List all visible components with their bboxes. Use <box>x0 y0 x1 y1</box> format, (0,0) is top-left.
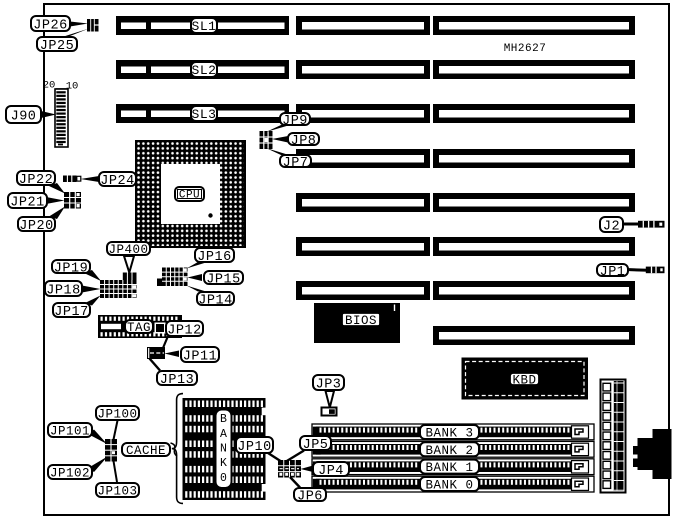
svg-text:JP9: JP9 <box>282 114 308 129</box>
svg-text:20: 20 <box>43 80 56 92</box>
svg-text:J90: J90 <box>11 109 37 124</box>
svg-text:JP100: JP100 <box>97 408 137 422</box>
svg-text:TAG: TAG <box>127 321 151 335</box>
svg-text:JP10: JP10 <box>237 440 271 455</box>
svg-text:JP4: JP4 <box>318 464 344 479</box>
svg-text:10: 10 <box>66 81 79 93</box>
svg-text:JP13: JP13 <box>160 373 194 388</box>
svg-text:JP22: JP22 <box>19 173 53 188</box>
svg-text:SL3: SL3 <box>192 107 217 122</box>
svg-text:BANK 2: BANK 2 <box>425 444 473 458</box>
svg-text:JP21: JP21 <box>10 195 44 210</box>
svg-text:0: 0 <box>220 472 227 485</box>
svg-text:JP17: JP17 <box>54 305 88 320</box>
svg-text:BANK 3: BANK 3 <box>425 427 473 441</box>
svg-text:JP15: JP15 <box>206 272 240 287</box>
svg-text:CPU: CPU <box>179 190 200 202</box>
svg-text:B: B <box>220 413 227 426</box>
svg-text:JP19: JP19 <box>54 261 88 276</box>
svg-text:CACHE: CACHE <box>126 444 166 458</box>
svg-text:JP3: JP3 <box>316 377 342 392</box>
svg-text:JP25: JP25 <box>40 39 74 54</box>
svg-text:SL1: SL1 <box>192 19 217 34</box>
svg-text:JP11: JP11 <box>183 349 217 364</box>
svg-text:BIOS: BIOS <box>345 314 377 328</box>
svg-text:JP5: JP5 <box>303 438 329 453</box>
svg-text:KBD: KBD <box>512 374 536 388</box>
svg-text:JP18: JP18 <box>46 283 80 298</box>
svg-text:JP20: JP20 <box>19 219 53 234</box>
svg-text:JP1: JP1 <box>600 265 626 280</box>
svg-text:JP400: JP400 <box>108 243 148 257</box>
svg-text:N: N <box>220 443 227 456</box>
svg-text:JP102: JP102 <box>50 467 90 481</box>
svg-text:JP6: JP6 <box>297 489 323 504</box>
svg-text:JP8: JP8 <box>291 134 317 149</box>
svg-text:JP26: JP26 <box>33 18 67 33</box>
svg-text:BANK 1: BANK 1 <box>425 461 473 475</box>
svg-text:JP103: JP103 <box>97 485 137 499</box>
svg-text:K: K <box>220 457 227 470</box>
svg-text:BANK 0: BANK 0 <box>425 479 473 493</box>
svg-text:JP16: JP16 <box>197 250 231 265</box>
svg-text:JP7: JP7 <box>283 156 309 171</box>
svg-text:MH2627: MH2627 <box>504 43 547 55</box>
svg-text:JP101: JP101 <box>50 425 90 439</box>
svg-text:JP12: JP12 <box>167 323 201 338</box>
svg-text:J2: J2 <box>603 219 620 234</box>
svg-text:JP14: JP14 <box>198 293 232 308</box>
svg-text:SL2: SL2 <box>192 63 217 78</box>
svg-text:JP24: JP24 <box>100 174 134 189</box>
svg-text:A: A <box>220 428 227 441</box>
